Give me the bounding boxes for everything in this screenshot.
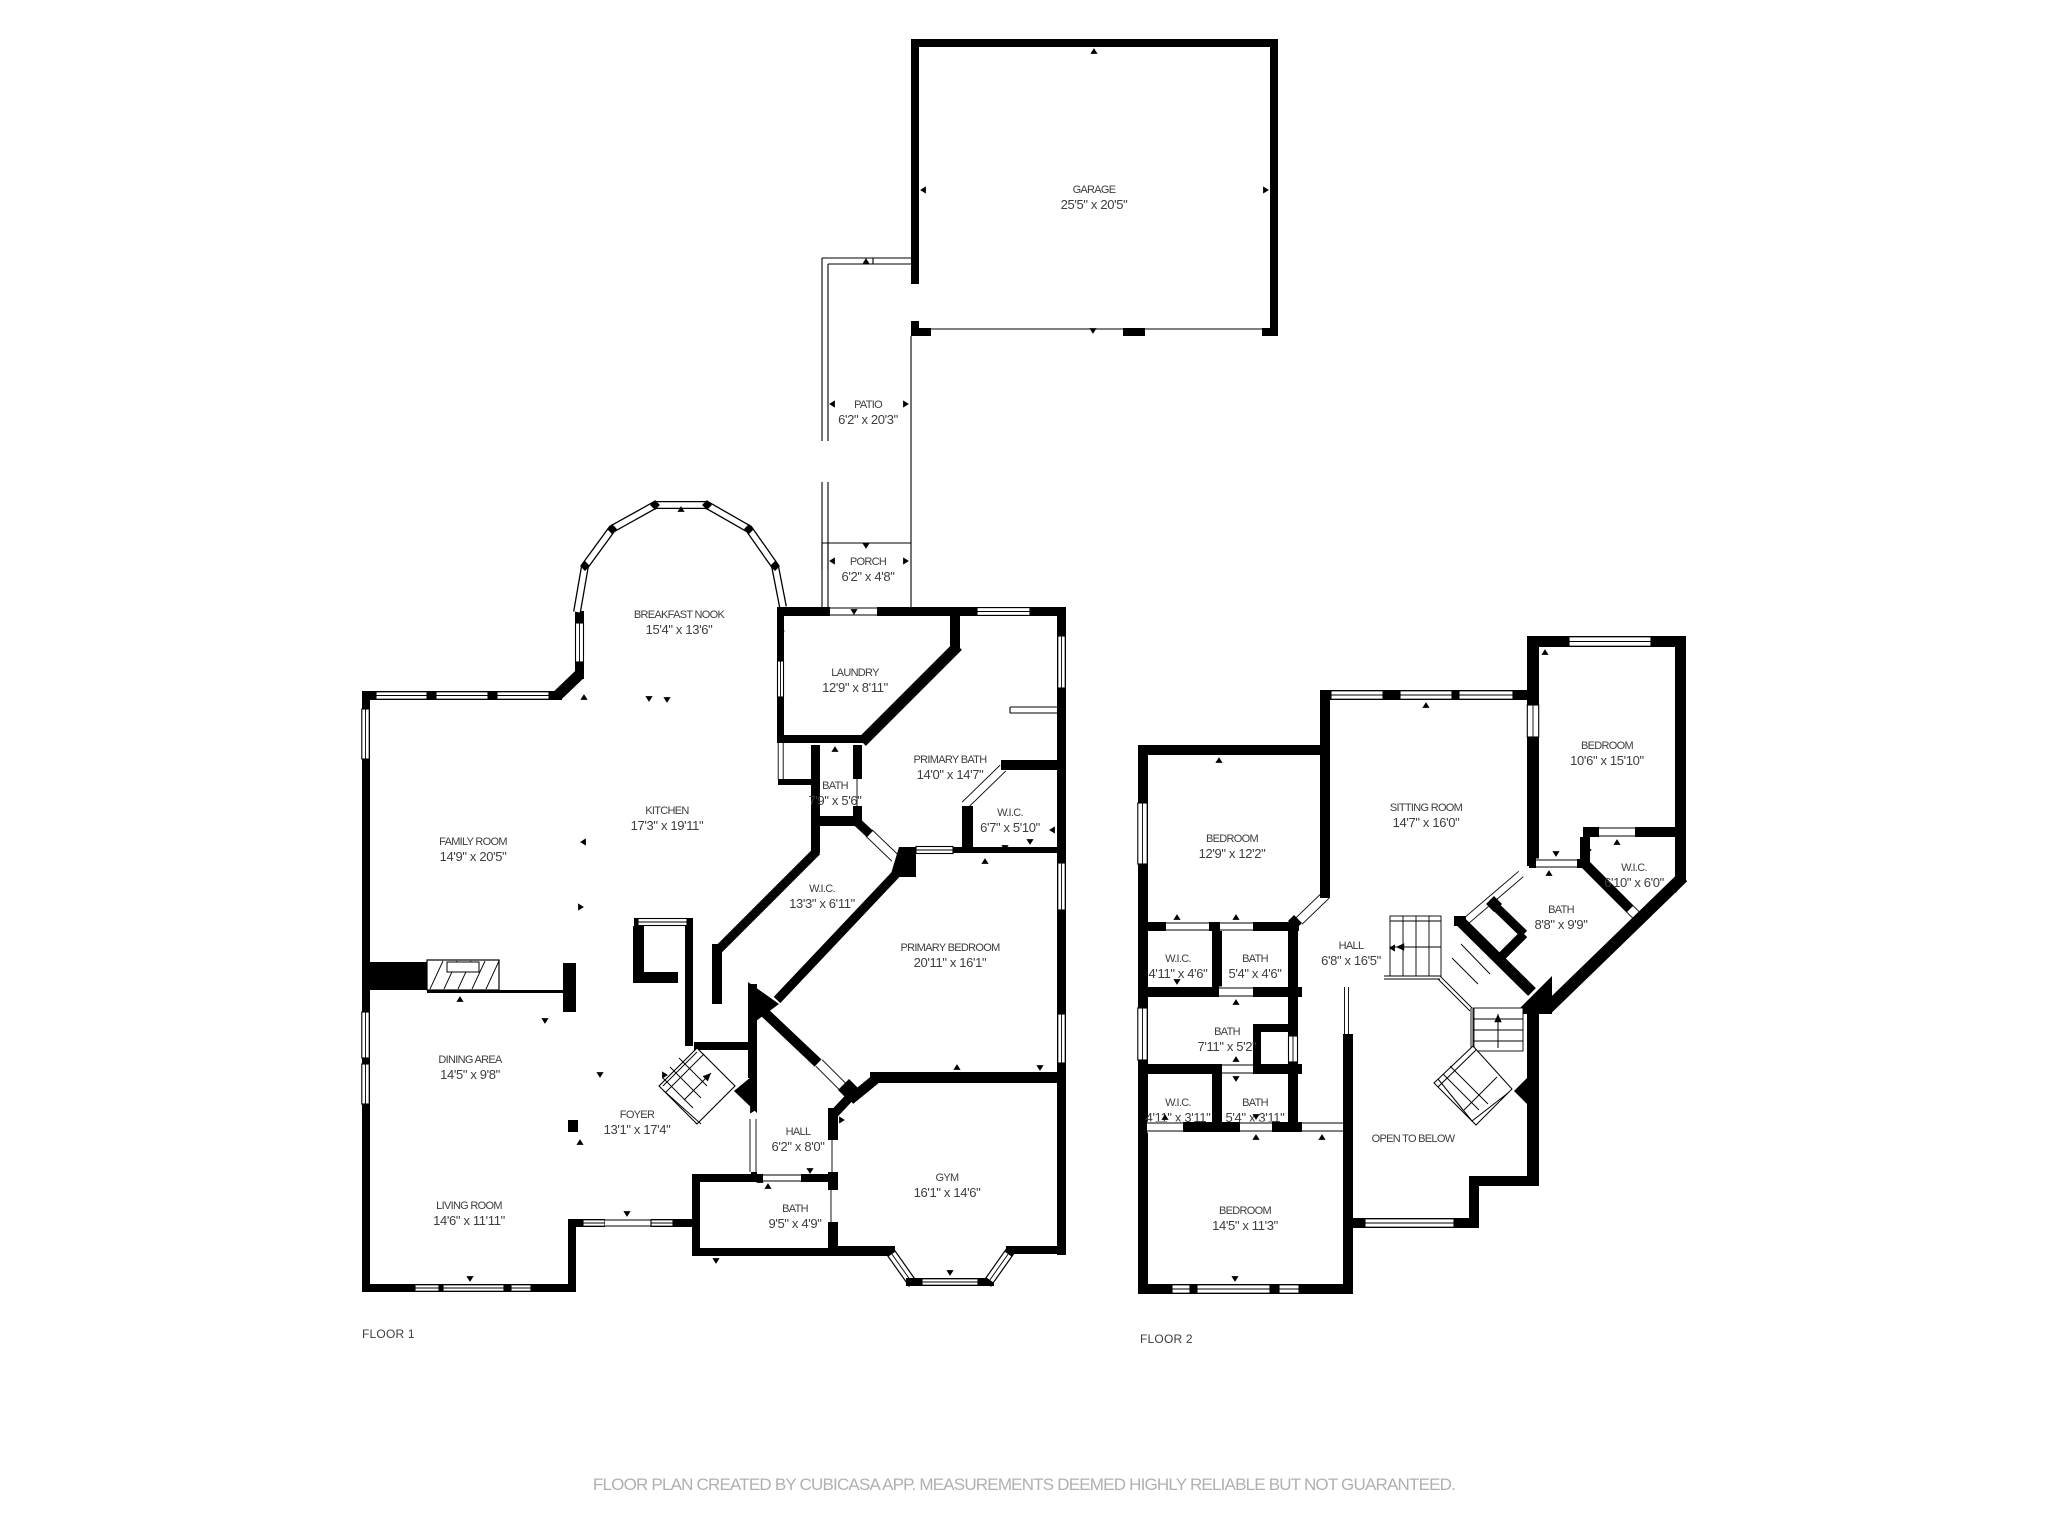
svg-text:GARAGE: GARAGE xyxy=(1073,184,1116,196)
svg-text:6'10" x 6'0": 6'10" x 6'0" xyxy=(1604,875,1665,890)
svg-text:PATIO: PATIO xyxy=(854,399,883,411)
svg-text:10'6" x 15'10": 10'6" x 15'10" xyxy=(1570,753,1644,768)
svg-text:W.I.C.: W.I.C. xyxy=(1621,862,1647,874)
svg-text:LAUNDRY: LAUNDRY xyxy=(831,667,880,679)
svg-text:PRIMARY BATH: PRIMARY BATH xyxy=(914,754,988,766)
svg-text:BATH: BATH xyxy=(1242,1097,1268,1109)
svg-text:BATH: BATH xyxy=(1242,953,1268,965)
svg-text:HALL: HALL xyxy=(1339,940,1364,952)
svg-text:6'2" x 8'0": 6'2" x 8'0" xyxy=(772,1139,826,1154)
svg-text:14'5" x 11'3": 14'5" x 11'3" xyxy=(1212,1218,1279,1233)
svg-text:13'1" x 17'4": 13'1" x 17'4" xyxy=(604,1122,671,1137)
svg-text:7'9" x 5'6": 7'9" x 5'6" xyxy=(809,793,863,808)
svg-text:BATH: BATH xyxy=(822,780,848,792)
svg-text:DINING AREA: DINING AREA xyxy=(438,1054,503,1066)
svg-text:6'7" x 5'10": 6'7" x 5'10" xyxy=(980,820,1041,835)
svg-text:FAMILY ROOM: FAMILY ROOM xyxy=(439,836,507,848)
svg-text:BEDROOM: BEDROOM xyxy=(1581,740,1633,752)
svg-text:BATH: BATH xyxy=(782,1203,808,1215)
svg-text:6'2" x 20'3": 6'2" x 20'3" xyxy=(838,412,899,427)
svg-text:5'4" x 4'6": 5'4" x 4'6" xyxy=(1229,966,1283,981)
svg-text:20'11" x 16'1": 20'11" x 16'1" xyxy=(914,955,987,970)
svg-text:BATH: BATH xyxy=(1548,904,1574,916)
svg-text:BREAKFAST NOOK: BREAKFAST NOOK xyxy=(634,609,726,621)
svg-text:14'6" x 11'11": 14'6" x 11'11" xyxy=(433,1213,505,1228)
svg-text:4'11" x 4'6": 4'11" x 4'6" xyxy=(1149,966,1209,981)
svg-text:BEDROOM: BEDROOM xyxy=(1219,1205,1271,1217)
svg-text:14'9" x 20'5": 14'9" x 20'5" xyxy=(440,849,507,864)
svg-text:8'8" x 9'9": 8'8" x 9'9" xyxy=(1535,917,1589,932)
svg-text:14'7" x 16'0": 14'7" x 16'0" xyxy=(1393,815,1460,830)
svg-text:OPEN TO BELOW: OPEN TO BELOW xyxy=(1372,1133,1456,1145)
svg-text:9'5" x 4'9": 9'5" x 4'9" xyxy=(769,1216,823,1231)
svg-text:FLOOR 1: FLOOR 1 xyxy=(362,1327,415,1341)
svg-text:6'8" x 16'5": 6'8" x 16'5" xyxy=(1321,953,1382,968)
svg-text:W.I.C.: W.I.C. xyxy=(1165,1097,1191,1109)
svg-text:FLOOR 2: FLOOR 2 xyxy=(1140,1332,1193,1346)
svg-text:W.I.C.: W.I.C. xyxy=(1165,953,1191,965)
svg-text:KITCHEN: KITCHEN xyxy=(645,805,689,817)
svg-text:SITTING ROOM: SITTING ROOM xyxy=(1390,802,1463,814)
svg-text:FOYER: FOYER xyxy=(620,1109,655,1121)
svg-text:6'2" x 4'8": 6'2" x 4'8" xyxy=(842,569,896,584)
svg-text:12'9" x 8'11": 12'9" x 8'11" xyxy=(822,680,889,695)
svg-text:13'3" x 6'11": 13'3" x 6'11" xyxy=(789,896,856,911)
svg-text:FLOOR PLAN CREATED BY CUBICASA: FLOOR PLAN CREATED BY CUBICASA APP. MEAS… xyxy=(593,1475,1455,1494)
svg-text:14'0" x 14'7": 14'0" x 14'7" xyxy=(917,767,984,782)
svg-text:12'9" x 12'2": 12'9" x 12'2" xyxy=(1199,846,1266,861)
svg-text:BATH: BATH xyxy=(1214,1026,1240,1038)
svg-text:LIVING ROOM: LIVING ROOM xyxy=(436,1200,502,1212)
svg-text:W.I.C.: W.I.C. xyxy=(997,807,1023,819)
svg-text:16'1" x 14'6": 16'1" x 14'6" xyxy=(914,1185,981,1200)
svg-text:W.I.C.: W.I.C. xyxy=(809,883,835,895)
svg-text:25'5" x 20'5": 25'5" x 20'5" xyxy=(1061,197,1128,212)
svg-text:GYM: GYM xyxy=(936,1172,959,1184)
svg-text:15'4" x 13'6": 15'4" x 13'6" xyxy=(646,622,713,637)
svg-text:HALL: HALL xyxy=(786,1126,811,1138)
svg-text:PRIMARY BEDROOM: PRIMARY BEDROOM xyxy=(900,942,1000,954)
svg-text:17'3" x 19'11": 17'3" x 19'11" xyxy=(631,818,704,833)
svg-text:7'11" x 5'2": 7'11" x 5'2" xyxy=(1198,1039,1258,1054)
svg-text:BEDROOM: BEDROOM xyxy=(1206,833,1258,845)
svg-text:14'5" x 9'8": 14'5" x 9'8" xyxy=(440,1067,501,1082)
svg-text:PORCH: PORCH xyxy=(850,556,887,568)
